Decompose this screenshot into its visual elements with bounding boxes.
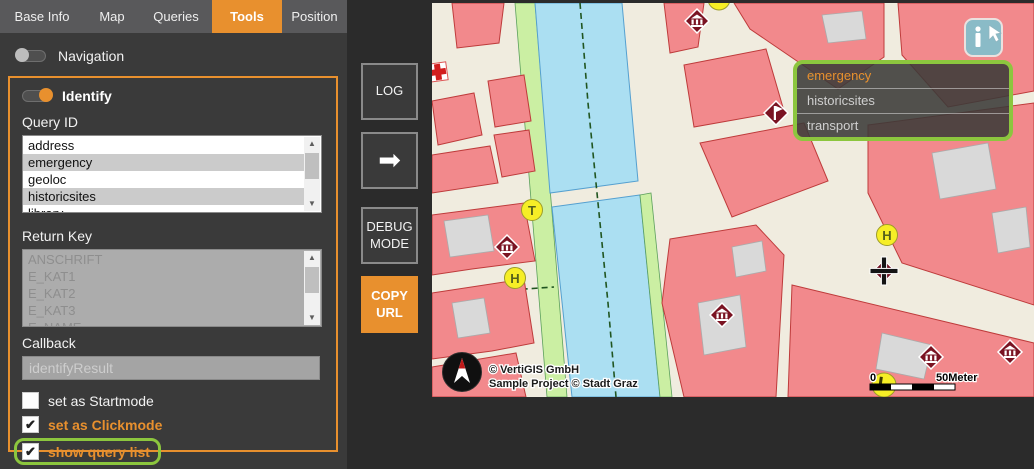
scrollbar[interactable]: ▲ ▼ [304, 251, 320, 325]
attribution-line2: Sample Project © Stadt Graz [489, 378, 638, 390]
return-key-item-e_name: E_NAME [23, 319, 304, 327]
debug-mode-label: DEBUG MODE [366, 219, 414, 252]
identify-cursor-icon [965, 19, 1002, 56]
checkbox-row-show-query-list: ✔show query list [14, 438, 161, 465]
scroll-thumb[interactable] [305, 153, 319, 179]
checkbox-row-set-as-startmode: set as Startmode [22, 392, 154, 409]
scrollbar[interactable]: ▲ ▼ [304, 137, 320, 211]
identify-section: Identify Query ID addressemergencygeoloc… [8, 76, 338, 452]
tab-bar: Base InfoMapQueriesToolsPosition [0, 0, 347, 33]
checkbox-label: set as Clickmode [48, 417, 162, 433]
return-key-item-e_kat3: E_KAT3 [23, 302, 304, 319]
navigation-toggle[interactable] [16, 50, 46, 62]
return-key-item-anschrift: ANSCHRIFT [23, 251, 304, 268]
query-list-overlay: emergencyhistoricsitestransport [793, 60, 1013, 141]
query-id-item-library[interactable]: library [23, 205, 304, 213]
svg-text:H: H [510, 271, 519, 286]
overlay-item-historicsites[interactable]: historicsites [797, 89, 1009, 114]
checkbox[interactable]: ✔ [22, 416, 39, 433]
svg-text:H: H [882, 228, 891, 243]
callback-input[interactable]: identifyResult [22, 356, 320, 380]
return-key-item-e_kat2: E_KAT2 [23, 285, 304, 302]
overlay-item-emergency[interactable]: emergency [797, 64, 1009, 89]
callback-label: Callback [22, 335, 76, 351]
log-button[interactable]: LOG [361, 63, 418, 120]
copy-url-label: COPY URL [368, 288, 412, 321]
tab-position[interactable]: Position [282, 0, 347, 33]
identify-label: Identify [62, 88, 112, 104]
tab-tools[interactable]: Tools [212, 0, 282, 33]
tab-queries[interactable]: Queries [140, 0, 212, 33]
query-id-listbox[interactable]: addressemergencygeolochistoricsiteslibra… [22, 135, 322, 213]
arrow-icon: ➡ [378, 144, 401, 178]
checkbox-label: show query list [48, 444, 150, 460]
settings-panel: Base InfoMapQueriesToolsPosition Navigat… [0, 0, 347, 469]
compass-icon [443, 353, 482, 392]
transit-marker-h2: H [877, 225, 898, 246]
checkbox-row-set-as-clickmode: ✔set as Clickmode [22, 416, 162, 433]
overlay-item-transport[interactable]: transport [797, 114, 1009, 138]
scroll-down-icon[interactable]: ▼ [304, 311, 320, 325]
identify-toggle-row: Identify [22, 88, 112, 104]
attribution-line1: © VertiGIS GmbH [489, 364, 579, 376]
navigation-toggle-row: Navigation [16, 48, 124, 64]
svg-text:0: 0 [870, 372, 876, 384]
query-id-item-historicsites[interactable]: historicsites [23, 188, 304, 205]
tab-map[interactable]: Map [84, 0, 140, 33]
copy-url-button[interactable]: COPY URL [361, 276, 418, 333]
scroll-thumb[interactable] [305, 267, 319, 293]
arrow-button[interactable]: ➡ [361, 132, 418, 189]
toggle-knob [39, 88, 53, 102]
return-key-listbox: ANSCHRIFTE_KAT1E_KAT2E_KAT3E_NAME ▲ ▼ [22, 249, 322, 327]
scroll-up-icon[interactable]: ▲ [304, 251, 320, 265]
scroll-up-icon[interactable]: ▲ [304, 137, 320, 151]
svg-text:50Meter: 50Meter [936, 372, 978, 384]
svg-text:T: T [528, 203, 536, 218]
query-id-item-address[interactable]: address [23, 137, 304, 154]
transit-marker-t: T [522, 200, 543, 221]
checkbox[interactable]: ✔ [22, 443, 39, 460]
identify-toggle[interactable] [22, 90, 52, 102]
return-key-label: Return Key [22, 228, 92, 244]
navigation-label: Navigation [58, 48, 124, 64]
query-id-label: Query ID [22, 114, 78, 130]
query-id-item-geoloc[interactable]: geoloc [23, 171, 304, 188]
debug-mode-button[interactable]: DEBUG MODE [361, 207, 418, 264]
toggle-knob [15, 48, 29, 62]
checkbox[interactable] [22, 392, 39, 409]
checkbox-label: set as Startmode [48, 393, 154, 409]
return-key-item-e_kat1: E_KAT1 [23, 268, 304, 285]
redcross-marker [432, 62, 448, 82]
query-id-item-emergency[interactable]: emergency [23, 154, 304, 171]
map-view[interactable]: T H H © VertiGIS GmbH Sample Project © S… [432, 3, 1034, 397]
transit-marker-h: H [505, 268, 526, 289]
tab-base-info[interactable]: Base Info [0, 0, 84, 33]
scroll-down-icon[interactable]: ▼ [304, 197, 320, 211]
